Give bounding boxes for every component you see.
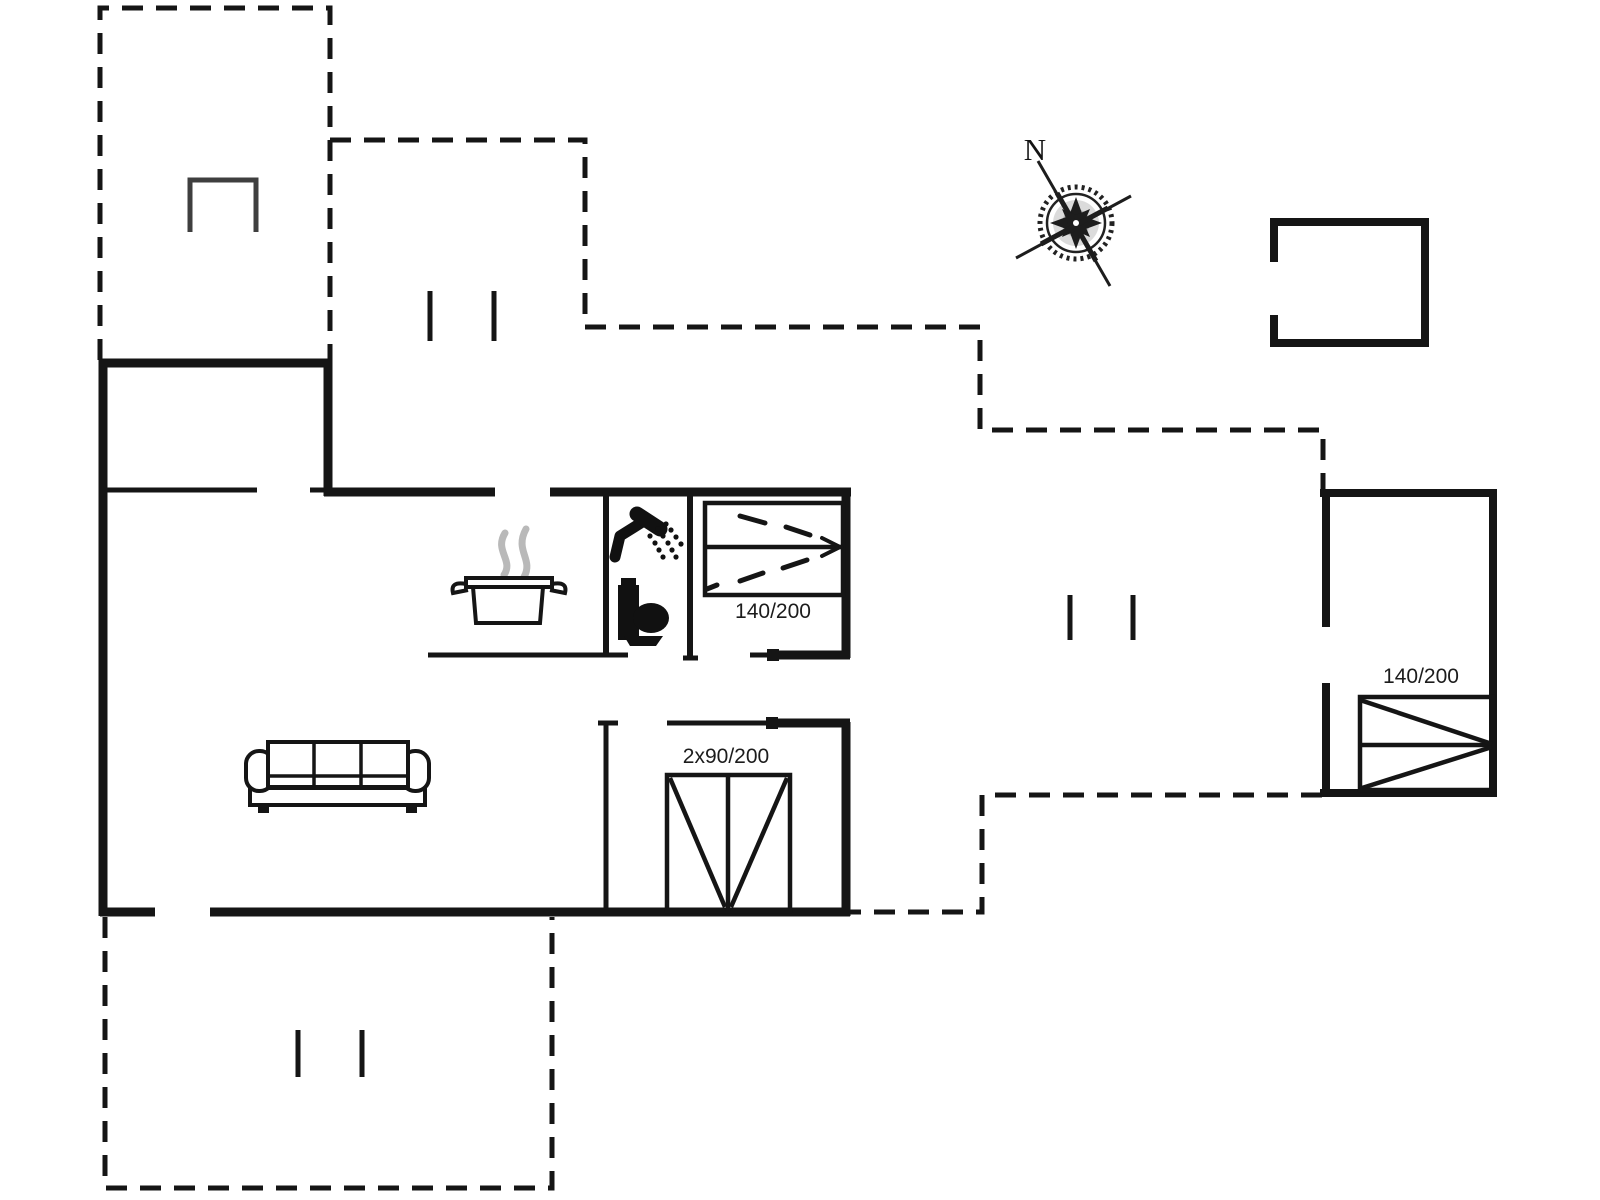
compass-north-label: N <box>1024 132 1046 168</box>
window-marker-icon <box>430 291 494 341</box>
window-marker-icon <box>1070 595 1133 640</box>
terrace-south-outline <box>105 917 552 1188</box>
steam-icon <box>502 529 527 577</box>
bed-label-inner: 140/200 <box>735 600 811 624</box>
bed-symbol-inner <box>705 503 843 595</box>
terrace-upper-left-outline <box>100 8 330 360</box>
bed-symbol-double <box>667 775 790 911</box>
shower-icon <box>615 514 684 560</box>
grill-icon <box>190 180 256 232</box>
sofa-icon <box>246 742 429 813</box>
bed-label-double: 2x90/200 <box>683 745 769 769</box>
terrace-upper-mid-outline <box>330 140 1323 492</box>
bed-label-annex: 140/200 <box>1383 665 1459 689</box>
terrace-east-outline <box>848 795 1322 912</box>
compass-rose-icon <box>1016 161 1131 286</box>
cooking-pot-icon <box>453 578 566 623</box>
window-marker-icon <box>298 1030 362 1077</box>
door-jamb-dot <box>766 717 778 729</box>
door-jamb-dot <box>767 649 779 661</box>
toilet-icon <box>618 578 669 646</box>
bed-symbol-annex <box>1360 697 1493 790</box>
bedroom-double-left-wall <box>598 723 618 912</box>
floorplan-canvas: N 140/200 140/200 2x90/200 <box>0 0 1600 1200</box>
